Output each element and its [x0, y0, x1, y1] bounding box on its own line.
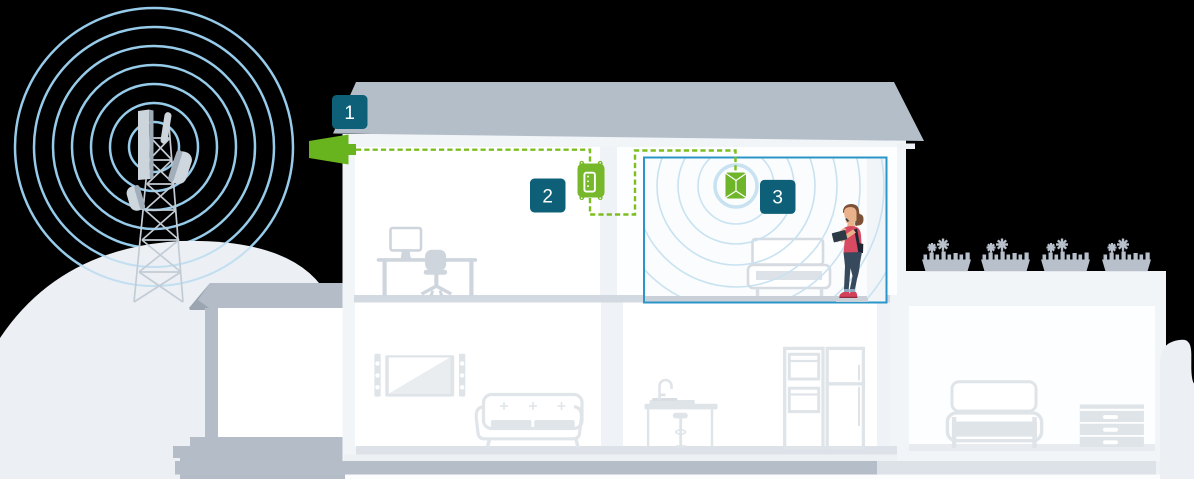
svg-text:1: 1 [344, 103, 355, 124]
svg-text:3: 3 [772, 188, 783, 209]
svg-text:2: 2 [542, 186, 553, 207]
